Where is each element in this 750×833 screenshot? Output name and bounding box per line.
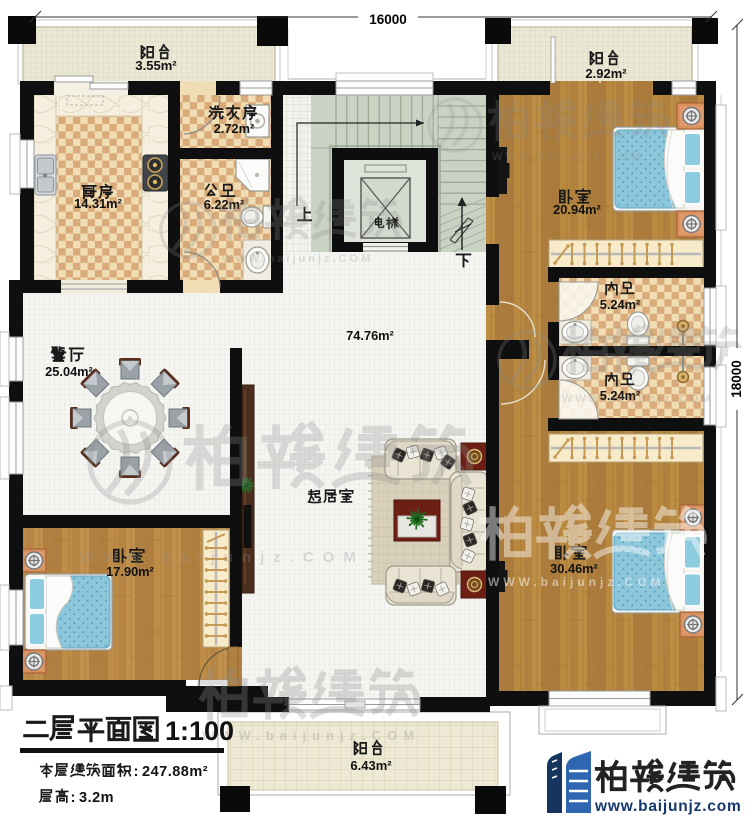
svg-text:WWW.baijunjz.COM: WWW.baijunjz.COM (222, 253, 373, 265)
svg-text:3.2m: 3.2m (79, 790, 114, 806)
svg-text:17.90m²: 17.90m² (106, 564, 154, 579)
svg-text:74.76m²: 74.76m² (346, 328, 394, 343)
svg-text:WWW.baijunjz.COM: WWW.baijunjz.COM (562, 393, 713, 405)
svg-text:WWW.baijunjz.COM: WWW.baijunjz.COM (80, 549, 365, 566)
svg-text:247.88m²: 247.88m² (142, 764, 208, 780)
svg-text:5.24m²: 5.24m² (600, 297, 641, 312)
svg-text:16000: 16000 (369, 12, 407, 27)
svg-text:1:100: 1:100 (165, 716, 234, 746)
svg-text:2.92m²: 2.92m² (585, 66, 627, 81)
svg-text:30.46m²: 30.46m² (550, 561, 598, 576)
svg-text::: : (134, 763, 139, 780)
svg-text:WWW.baijunjz.COM: WWW.baijunjz.COM (488, 575, 665, 589)
svg-text:WWW.baijunjz.COM: WWW.baijunjz.COM (492, 151, 643, 163)
svg-text:18000: 18000 (729, 360, 744, 398)
svg-text:25.04m²: 25.04m² (45, 364, 93, 379)
svg-text:20.94m²: 20.94m² (553, 202, 601, 217)
svg-text:14.31m²: 14.31m² (74, 196, 122, 211)
svg-text::: : (71, 789, 76, 806)
svg-text:6.43m²: 6.43m² (350, 758, 392, 773)
svg-text:WWW.baijunjz.COM: WWW.baijunjz.COM (202, 728, 420, 743)
svg-text:3.55m²: 3.55m² (135, 58, 177, 73)
svg-text:www.baijunjz.com: www.baijunjz.com (594, 798, 742, 815)
svg-text:2.72m²: 2.72m² (214, 121, 255, 136)
